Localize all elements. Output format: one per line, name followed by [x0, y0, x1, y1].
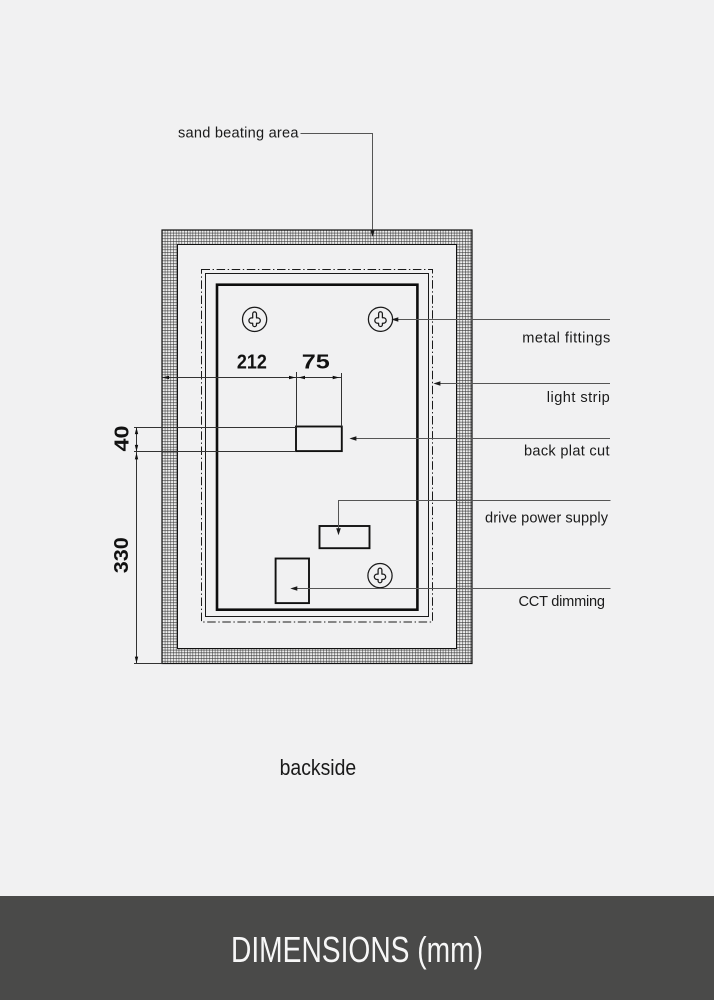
svg-text:backside: backside — [280, 755, 357, 780]
svg-text:light strip: light strip — [547, 390, 610, 406]
svg-text:CCT dimming: CCT dimming — [519, 594, 606, 610]
svg-text:40: 40 — [111, 426, 133, 452]
svg-text:metal fittings: metal fittings — [522, 330, 610, 346]
svg-text:DIMENSIONS (mm): DIMENSIONS (mm) — [231, 929, 483, 970]
svg-text:75: 75 — [302, 352, 330, 374]
svg-text:back plat cut: back plat cut — [524, 444, 610, 460]
svg-text:drive power supply: drive power supply — [485, 511, 609, 527]
svg-text:sand beating area: sand beating area — [178, 126, 299, 142]
svg-text:212: 212 — [237, 352, 267, 374]
svg-text:330: 330 — [111, 537, 133, 573]
